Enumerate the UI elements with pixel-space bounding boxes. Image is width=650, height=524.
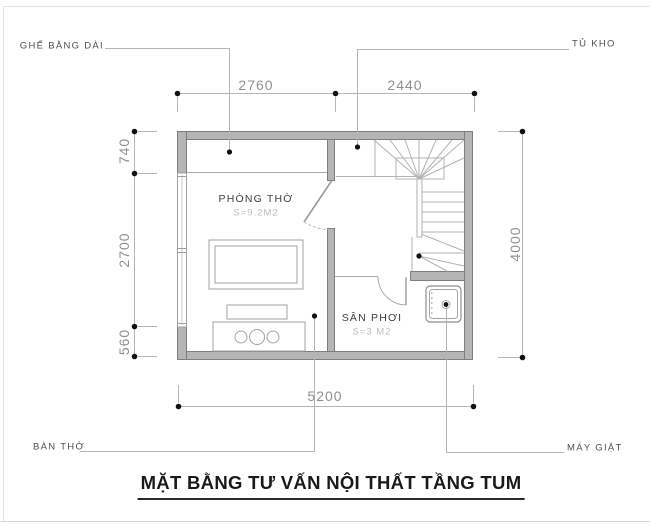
dim-top-right-value: 2440 xyxy=(387,77,422,93)
room-title-san-phoi: SÂN PHƠI xyxy=(342,312,403,324)
altar-furniture xyxy=(209,240,305,351)
staircase-symbol xyxy=(336,140,464,271)
stair-rail xyxy=(417,179,422,237)
wall-top xyxy=(178,132,473,140)
incense-bowl-center xyxy=(250,330,265,345)
wall-interior-lower xyxy=(328,229,335,352)
room-area-phong-tho: S=9.2M2 xyxy=(233,208,278,219)
dim-left-2700: 2700 xyxy=(116,232,132,267)
altar-table xyxy=(213,322,305,351)
incense-bowl-right xyxy=(267,331,279,343)
wall-washer-nook xyxy=(411,272,465,281)
floorplan-drawing xyxy=(0,0,650,524)
bench-label: GHẾ BẰNG DÀI xyxy=(20,41,104,52)
room-area-san-phoi: S=3 M2 xyxy=(352,327,391,338)
door-swing-symbol-room xyxy=(304,181,332,230)
dim-bottom-5200: 5200 xyxy=(307,388,342,404)
wall-left-upper xyxy=(178,132,187,174)
dim-left-560: 560 xyxy=(116,329,132,355)
dim-right-4000: 4000 xyxy=(507,226,523,261)
dim-top xyxy=(177,94,475,113)
altar-label: BÀN THỜ xyxy=(33,442,85,453)
washer-label: MÁY GIẶT xyxy=(567,443,623,454)
storage-label: TỦ KHO xyxy=(572,39,616,50)
wall-bottom xyxy=(178,352,473,360)
dim-top-left-value: 2760 xyxy=(238,77,273,93)
door-swing-symbol-balcony xyxy=(335,277,406,306)
bench-leader-dot xyxy=(227,149,232,154)
altar-platform-inner xyxy=(215,246,297,283)
washing-machine-icon xyxy=(426,286,461,322)
lower-winder-treads xyxy=(412,234,464,271)
straight-treads xyxy=(422,192,464,232)
dim-left xyxy=(135,132,158,358)
wall-right xyxy=(465,132,473,360)
frame-lines xyxy=(0,6,650,522)
altar-leader-dot xyxy=(312,313,317,318)
wall-left-lower xyxy=(178,327,187,360)
winder-treads xyxy=(374,140,464,179)
wall-interior-upper xyxy=(328,140,335,181)
room-title-phong-tho: PHÒNG THỜ xyxy=(218,193,293,205)
stair-walkline-dot xyxy=(416,253,421,258)
floorplan-canvas: GHẾ BẰNG DÀI TỦ KHO BÀN THỜ MÁY GIẶT PHÒ… xyxy=(0,0,650,524)
altar-shelf xyxy=(227,305,287,319)
altar-platform-outer xyxy=(209,240,303,289)
incense-bowl-left xyxy=(235,331,247,343)
storage-leader-dot xyxy=(355,144,360,149)
window-symbol xyxy=(178,173,187,327)
dim-left-740: 740 xyxy=(116,138,132,164)
drawing-title: MẶT BẰNG TƯ VẤN NỘI THẤT TẦNG TUM xyxy=(138,472,525,500)
